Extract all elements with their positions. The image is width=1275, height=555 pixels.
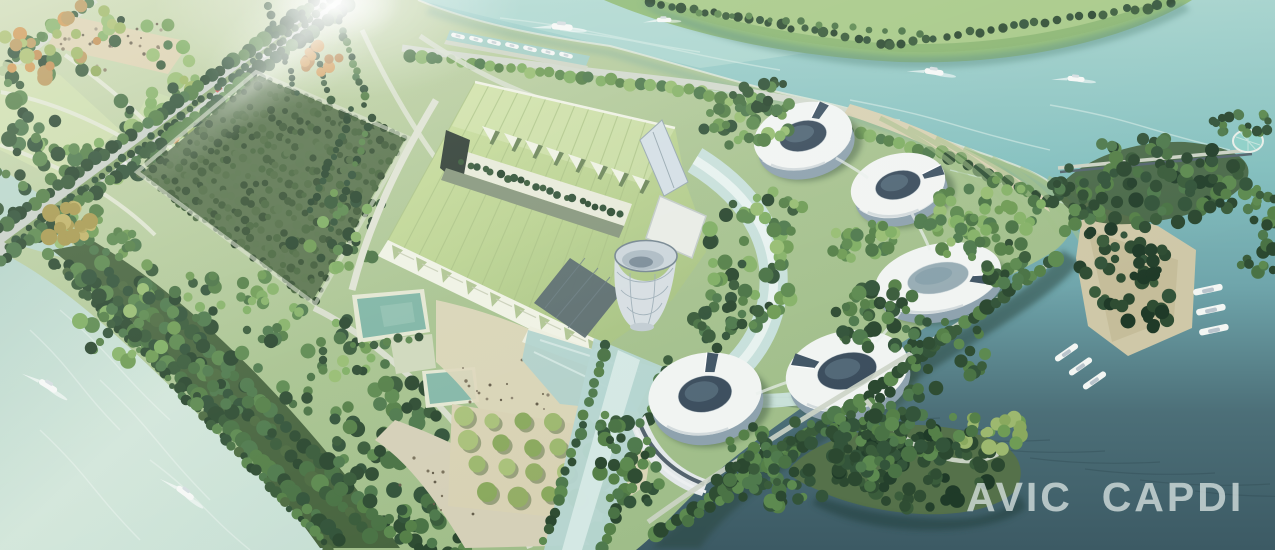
svg-text:AVIC CAPDI: AVIC CAPDI (966, 474, 1244, 520)
